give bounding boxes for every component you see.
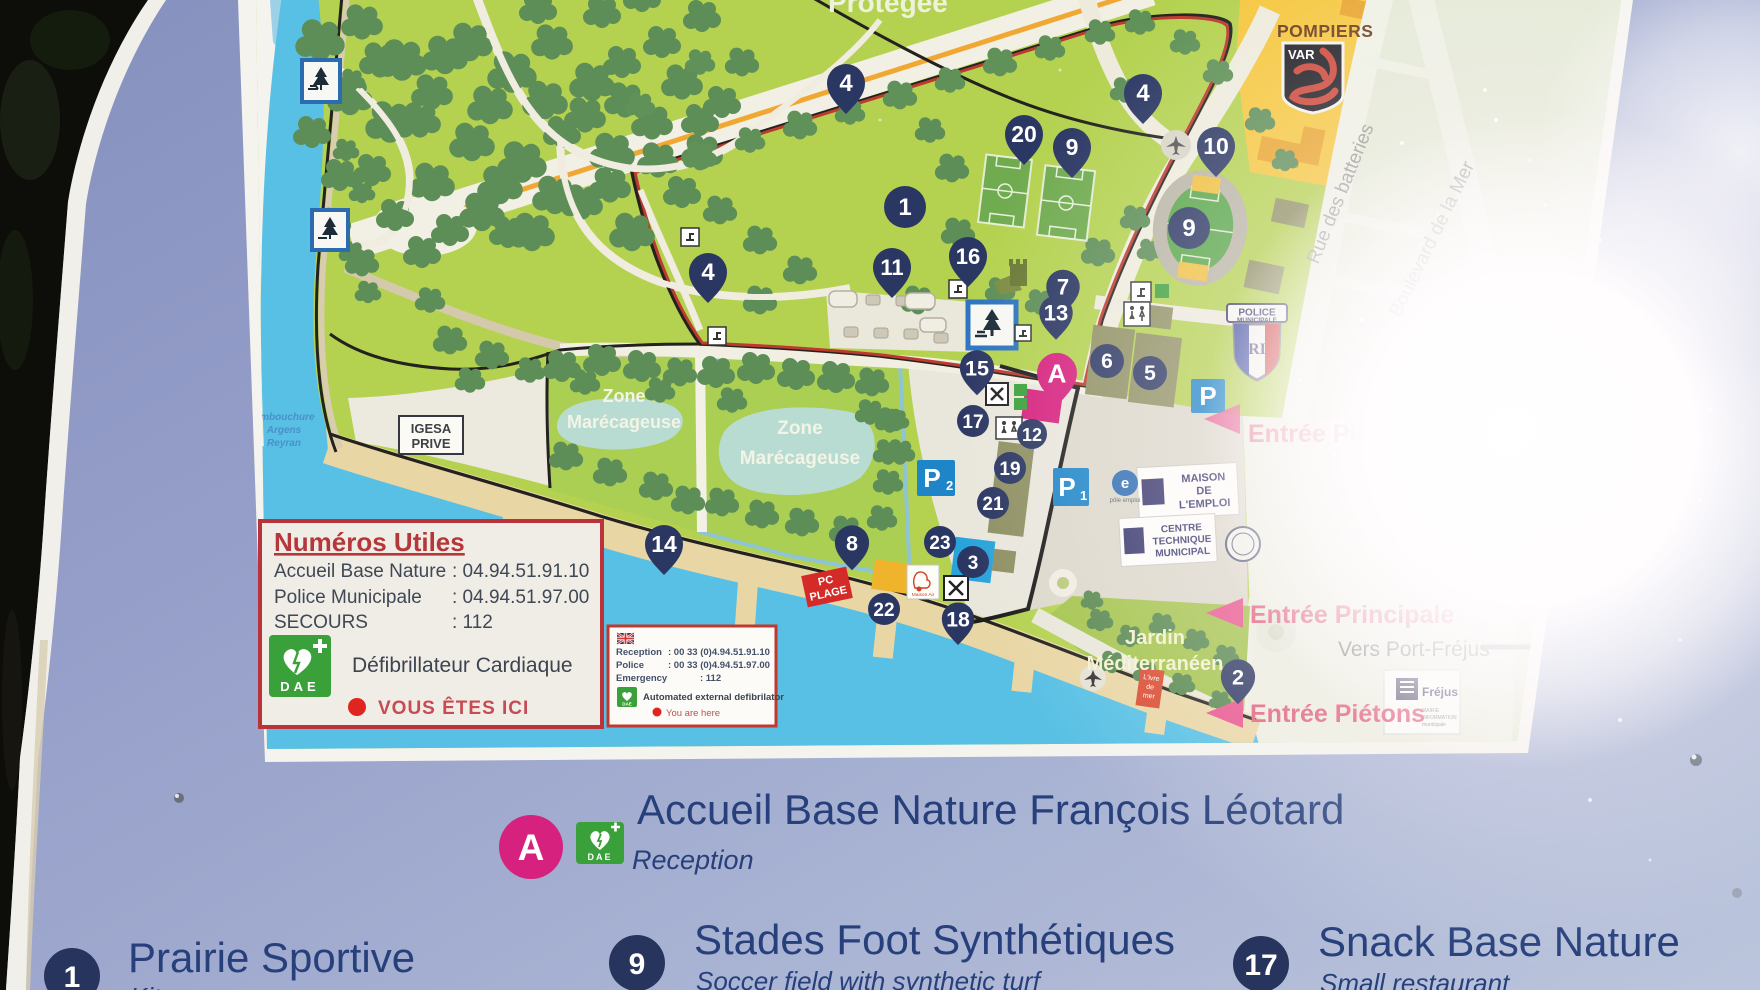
svg-text:: 04.94.51.97.00: : 04.94.51.97.00 [452,587,589,608]
svg-text:Maison Air: Maison Air [912,592,935,598]
svg-text:DAE: DAE [587,852,612,862]
svg-text:Numéros Utiles: Numéros Utiles [274,527,465,557]
svg-text:Accueil Base Nature: Accueil Base Nature [274,561,446,582]
svg-text:2: 2 [946,478,953,493]
svg-text:Police: Police [616,660,644,671]
svg-text:Reception: Reception [616,647,662,658]
svg-text:IGESA: IGESA [411,421,452,436]
svg-text:Marécageuse: Marécageuse [740,448,860,469]
svg-text:Marécageuse: Marécageuse [567,412,681,432]
svg-text:You are here: You are here [666,708,720,719]
svg-text:1: 1 [898,194,911,221]
svg-text:Emergency: Emergency [616,673,668,684]
svg-text:Protégée: Protégée [828,0,948,18]
svg-text:18: 18 [946,607,970,631]
svg-text:: 00 33 (0)4.94.51.91.10: : 00 33 (0)4.94.51.91.10 [668,647,770,658]
svg-text:23: 23 [929,533,950,554]
svg-text:Zone: Zone [603,386,646,406]
svg-text:17: 17 [1244,949,1277,982]
svg-text:4: 4 [701,259,715,286]
svg-text:8: 8 [846,531,858,556]
svg-text:: 00 33 (0)4.94.51.97.00: : 00 33 (0)4.94.51.97.00 [668,660,770,671]
svg-text:16: 16 [956,244,980,269]
svg-text:Reyran: Reyran [267,438,301,449]
svg-text:Prairie Sportive: Prairie Sportive [128,934,415,981]
svg-text:: 112: : 112 [700,673,721,684]
svg-text:A: A [518,827,545,868]
svg-text:Kites area: Kites area [130,982,247,990]
svg-text:11: 11 [880,255,903,280]
svg-text:: 112: : 112 [452,612,493,633]
svg-text:20: 20 [1011,121,1037,147]
svg-text:Soccer field with synthetic tu: Soccer field with synthetic turf [696,966,1043,990]
svg-text:22: 22 [873,600,894,621]
svg-text:Zone: Zone [777,418,822,439]
svg-text:Automated external defibrilato: Automated external defibrilator [643,692,784,703]
svg-text:Stades Foot Synthétiques: Stades Foot Synthétiques [694,916,1175,963]
svg-text:Small restaurant: Small restaurant [1320,968,1511,990]
svg-text:VOUS ÊTES ICI: VOUS ÊTES ICI [378,697,529,719]
svg-text:SECOURS: SECOURS [274,612,368,633]
svg-text:DAE: DAE [622,702,632,707]
svg-text:14: 14 [651,531,677,557]
svg-text:9: 9 [629,948,646,981]
svg-text:P: P [923,463,940,493]
svg-text:Défibrillateur Cardiaque: Défibrillateur Cardiaque [352,654,573,677]
svg-text:DAE: DAE [280,679,319,694]
svg-text:1: 1 [64,961,81,990]
svg-text:4: 4 [839,70,853,97]
svg-text:PRIVE: PRIVE [411,436,450,451]
svg-text:Argens: Argens [266,425,302,436]
svg-text:: 04.94.51.91.10: : 04.94.51.91.10 [452,561,589,582]
svg-text:Embouchure: Embouchure [253,412,315,423]
svg-text:Reception: Reception [632,845,754,875]
svg-text:Police Municipale: Police Municipale [274,587,422,608]
